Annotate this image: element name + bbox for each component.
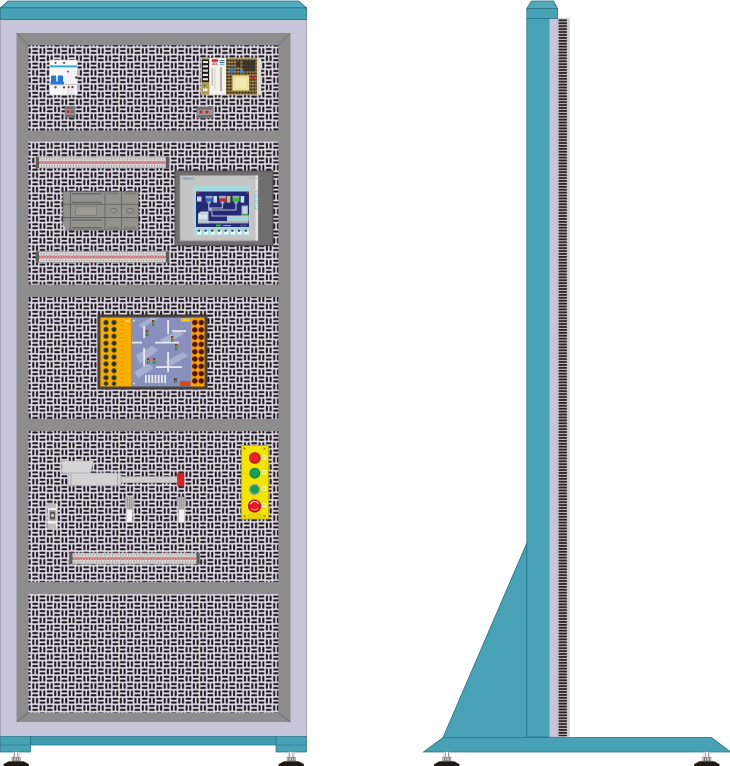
svg-text:TOUCH: TOUCH	[252, 190, 258, 210]
svg-text:MW: MW	[211, 60, 218, 65]
svg-text:KTP600 BASIC: KTP600 BASIC	[248, 177, 263, 180]
svg-text:SIEMENS: SIEMENS	[182, 176, 194, 180]
